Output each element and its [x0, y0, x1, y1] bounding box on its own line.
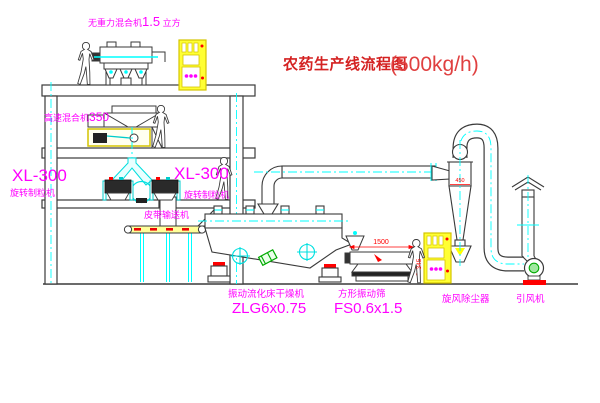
fan-base: [523, 280, 546, 285]
dim-sieve-length: 1500: [373, 239, 389, 246]
cad-canvas: 农药生产线流程图 (500kg/h) 无重力混合机1.5 立方 高速混合机350…: [0, 0, 600, 403]
label-dryer-model: ZLG6x0.75: [232, 300, 306, 317]
cabinet-indicator: [201, 45, 204, 48]
label-granulator-right-name: 旋转制粒机: [184, 189, 229, 200]
sieve-body: [350, 252, 414, 264]
label-belt-conveyor: 皮带输送机: [144, 209, 189, 220]
label-draft-fan: 引风机: [516, 293, 545, 305]
cabinet-indicator: [201, 77, 204, 80]
control-cabinet-top: [179, 40, 206, 90]
dim-sieve-height: 345: [416, 258, 423, 269]
diagram-title: 农药生产线流程图: [282, 55, 407, 73]
control-cabinet-right: [424, 233, 451, 283]
label-high-speed-mixer: 高速混合机350: [44, 110, 109, 124]
cabinet-knobs: [430, 267, 443, 271]
conveyor-pulley-left: [124, 226, 131, 233]
label-sieve-name: 方形振动筛: [338, 288, 386, 300]
rotary-feeder-base: [136, 198, 147, 203]
mid-slab: [42, 148, 255, 158]
label-granulator-right-model: XL-300: [174, 164, 229, 183]
fan-motor: [529, 263, 539, 273]
dim-cyclone-inlet: 450: [455, 178, 464, 184]
cabinet-indicator: [446, 270, 449, 273]
label-granulator-left-model: XL-300: [12, 166, 67, 185]
cabinet-knobs: [185, 74, 198, 78]
label-cyclone: 旋风除尘器: [442, 293, 490, 305]
cabinet-indicator: [446, 238, 449, 241]
label-sieve-model: FS0.6x1.5: [334, 300, 402, 317]
diagram-title-capacity: (500kg/h): [390, 53, 479, 76]
label-dryer-name: 振动流化床干燥机: [228, 288, 305, 300]
label-granulator-left-name: 旋转制粒机: [10, 187, 55, 198]
flow-diagram: 农药生产线流程图 (500kg/h) 无重力混合机1.5 立方 高速混合机350…: [0, 0, 600, 403]
top-slab: [42, 85, 255, 96]
